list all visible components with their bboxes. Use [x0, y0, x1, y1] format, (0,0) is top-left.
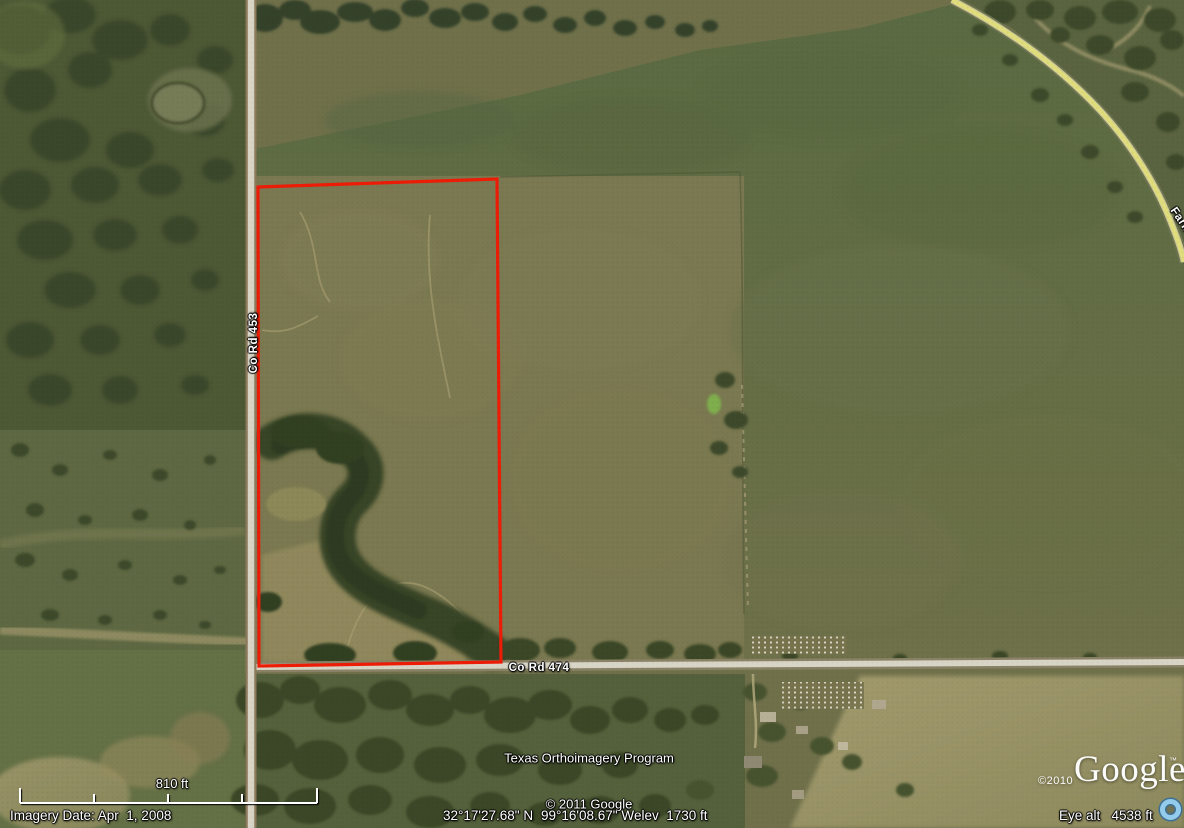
latitude-readout: 32°17'27.68" N	[443, 808, 533, 823]
imagery-program-attribution: Texas Orthoimagery Program	[504, 751, 674, 766]
road-label-co-rd-474: Co Rd 474	[509, 662, 570, 674]
google-watermark: ©2010 Google ™	[1038, 744, 1184, 800]
white-grid-plot-north	[752, 636, 847, 654]
eye-altitude-readout: Eye alt 4538 ft	[1059, 808, 1153, 823]
white-grid-plot-south	[782, 682, 864, 709]
google-logo: Google	[1074, 744, 1184, 796]
pond	[152, 83, 204, 123]
road-label-co-rd-453: Co Rd 453	[248, 313, 260, 374]
bright-green-tree	[707, 394, 721, 414]
streaming-indicator-icon	[1160, 799, 1181, 820]
google-earth-viewport[interactable]: Co Rd 453 Co Rd 474 Farm Texas Orthoimag…	[0, 0, 1184, 828]
elevation-readout: elev 1730 ft	[634, 808, 708, 823]
satellite-imagery[interactable]	[0, 0, 1184, 828]
trademark-symbol: ™	[1169, 756, 1177, 765]
longitude-readout: 99°16'08.67" W	[541, 808, 634, 823]
imagery-date: Imagery Date: Apr 1, 2008	[10, 808, 171, 823]
watermark-year: ©2010	[1038, 775, 1073, 787]
